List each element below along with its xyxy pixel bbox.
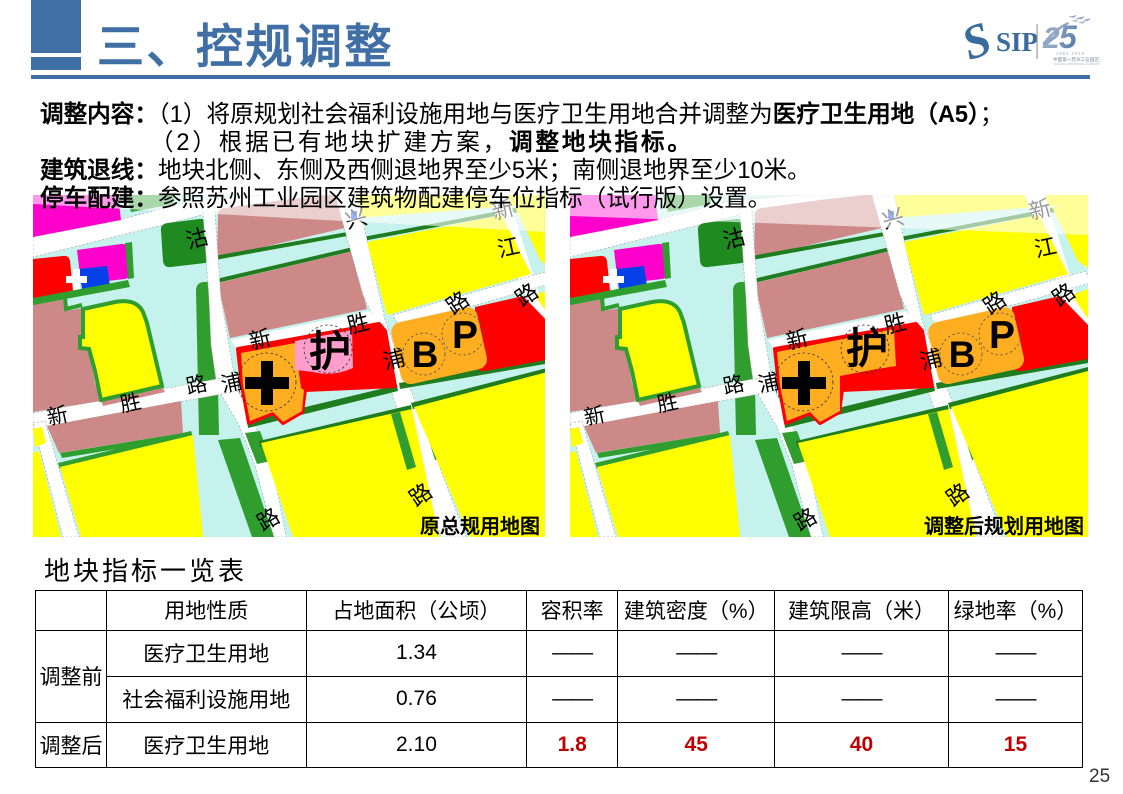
svg-text:5: 5 [1059, 19, 1078, 55]
svg-text:P: P [452, 314, 478, 357]
svg-text:SUZHOU INDUSTRIAL PARK 25TH: SUZHOU INDUSTRIAL PARK 25TH [1054, 62, 1100, 66]
svg-text:调整后规划用地图: 调整后规划用地图 [924, 514, 1084, 537]
svg-text:1994 2019: 1994 2019 [1056, 51, 1085, 56]
svg-text:原总规用地图: 原总规用地图 [420, 514, 540, 537]
svg-text:护: 护 [845, 325, 887, 372]
svg-text:S: S [955, 12, 998, 68]
svg-text:SIP: SIP [996, 27, 1038, 57]
svg-text:B: B [412, 334, 439, 375]
svg-text:B: B [948, 334, 975, 375]
svg-text:护: 护 [309, 328, 351, 375]
svg-text:P: P [988, 314, 1014, 357]
